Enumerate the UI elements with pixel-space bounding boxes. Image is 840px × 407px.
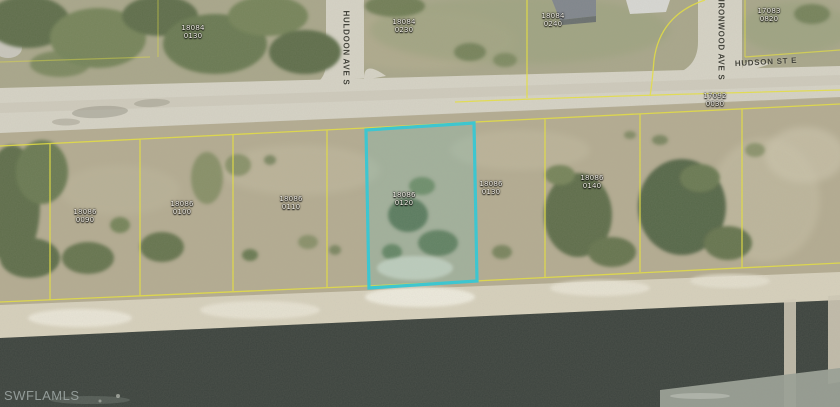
aerial-parcel-map: HULDOON AVE S IRONWOOD AVE S HUDSON ST E… (0, 0, 840, 407)
aerial-photo (0, 0, 840, 407)
photo-grain (0, 0, 840, 407)
